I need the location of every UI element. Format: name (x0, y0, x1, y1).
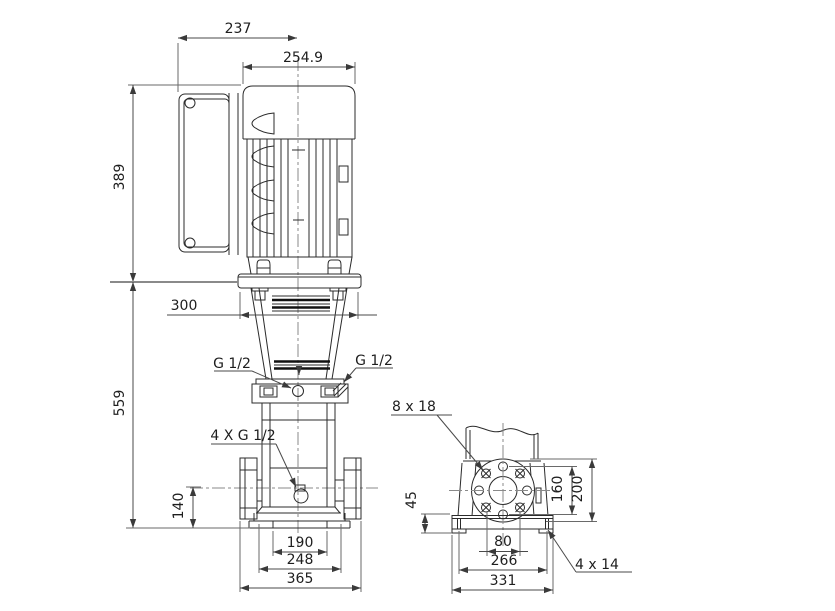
label-8x18: 8 x 18 (391, 399, 483, 470)
front-view: 8 x 18 45 160 200 (391, 399, 632, 594)
drawing-svg: 237 254.9 389 559 300 (0, 0, 835, 611)
pump-head (252, 379, 348, 403)
dim-45-label: 45 (404, 491, 420, 509)
pump-base (249, 507, 350, 528)
terminal-box (179, 93, 238, 255)
dim-248-label: 248 (287, 552, 314, 568)
break-line (466, 426, 538, 435)
dim-266-label: 266 (491, 553, 518, 569)
dim-365-label: 365 (287, 571, 314, 587)
dim-559-label: 559 (112, 390, 128, 417)
dim-254-9: 254.9 (243, 50, 355, 84)
bolt (257, 260, 270, 274)
hatch (333, 383, 348, 397)
4xg12-label: 4 X G 1/2 (210, 428, 275, 444)
motor-body (247, 139, 352, 257)
dim-160-label: 160 (550, 476, 566, 503)
label-g12-right: G 1/2 (344, 353, 393, 382)
motor-fan-cover (243, 86, 355, 139)
pump-dimensional-drawing: 237 254.9 389 559 300 (0, 0, 835, 611)
motor-rail (339, 166, 348, 182)
dim-300-label: 300 (171, 298, 198, 314)
dim-237: 237 (178, 21, 297, 92)
g12-right-label: G 1/2 (355, 353, 393, 369)
pump-column (466, 426, 538, 459)
dim-45: 45 (404, 491, 452, 533)
motor-stool (251, 288, 347, 379)
side-view: 237 254.9 389 559 300 (110, 21, 393, 592)
dim-80-label: 80 (494, 534, 512, 550)
dim-140-label: 140 (171, 493, 187, 520)
8x18-label: 8 x 18 (392, 399, 436, 415)
dim-331-label: 331 (490, 573, 517, 589)
cooling-fins (252, 113, 274, 234)
motor-flange (238, 257, 361, 300)
motor-rail (339, 219, 348, 235)
label-4x14: 4 x 14 (548, 530, 632, 573)
dim-559: 559 (110, 282, 250, 528)
dim-389-label: 389 (112, 164, 128, 191)
dim-140: 140 (171, 487, 201, 528)
base-plate (452, 516, 553, 534)
bolt (328, 260, 341, 274)
dim-254-9-label: 254.9 (283, 50, 323, 66)
g12-left-label: G 1/2 (213, 356, 251, 372)
dim-190-label: 190 (287, 535, 314, 551)
dim-200-label: 200 (570, 476, 586, 503)
dim-237-label: 237 (225, 21, 252, 37)
4x14-label: 4 x 14 (575, 557, 619, 573)
